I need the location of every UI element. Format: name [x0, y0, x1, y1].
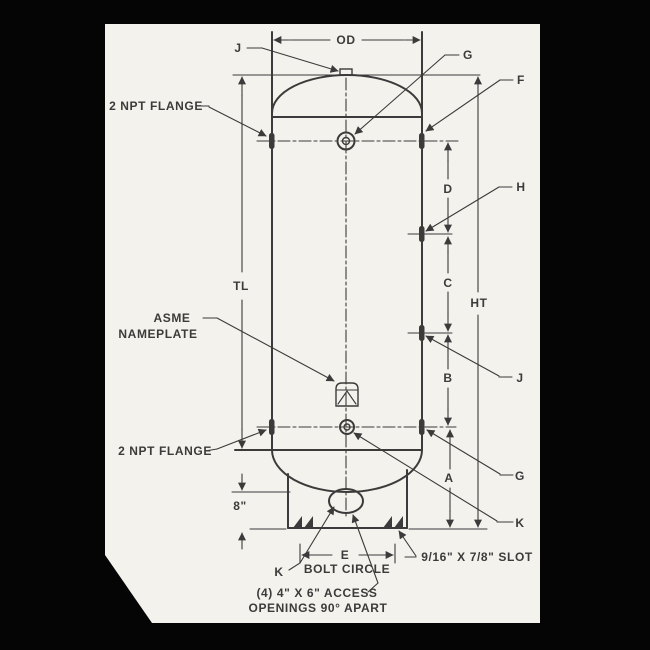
label-a: A: [444, 471, 453, 485]
label-g-top: G: [463, 48, 473, 62]
label-slot-note: 9/16" X 7/8" SLOT: [421, 550, 533, 564]
label-asme: ASME: [153, 311, 190, 325]
label-access-note-2: OPENINGS 90° APART: [249, 601, 388, 615]
label-skirt-height: 8": [233, 499, 247, 513]
label-b: B: [443, 371, 452, 385]
label-tl: TL: [233, 279, 249, 293]
label-f: F: [517, 73, 525, 87]
label-npt-flange-top: 2 NPT FLANGE: [109, 99, 203, 113]
flange-left-top: [269, 133, 275, 149]
label-nameplate: NAMEPLATE: [118, 327, 197, 341]
port-right-g: [419, 419, 425, 435]
screenshot-canvas: OD J G F 2 NPT FLANGE H D C HT TL ASME N…: [0, 0, 650, 650]
flange-right-top: [419, 133, 425, 149]
label-e: E: [341, 548, 350, 562]
port-right-h: [419, 226, 425, 242]
label-h: H: [516, 180, 525, 194]
port-right-j: [419, 325, 425, 341]
label-c: C: [443, 276, 452, 290]
tank-dimension-drawing: OD J G F 2 NPT FLANGE H D C HT TL ASME N…: [0, 0, 650, 650]
label-g-bottom: G: [515, 469, 525, 483]
label-access-note-1: (4) 4" X 6" ACCESS: [256, 586, 377, 600]
flange-left-bottom: [269, 419, 275, 435]
label-j-top: J: [234, 41, 241, 55]
label-ht: HT: [470, 296, 487, 310]
label-npt-flange-bottom: 2 NPT FLANGE: [118, 444, 212, 458]
label-od: OD: [336, 33, 355, 47]
label-k-right: K: [515, 516, 524, 530]
label-bolt-circle: BOLT CIRCLE: [304, 562, 390, 576]
label-j-right: J: [516, 371, 523, 385]
label-k-left: K: [274, 565, 283, 579]
label-d: D: [443, 182, 452, 196]
